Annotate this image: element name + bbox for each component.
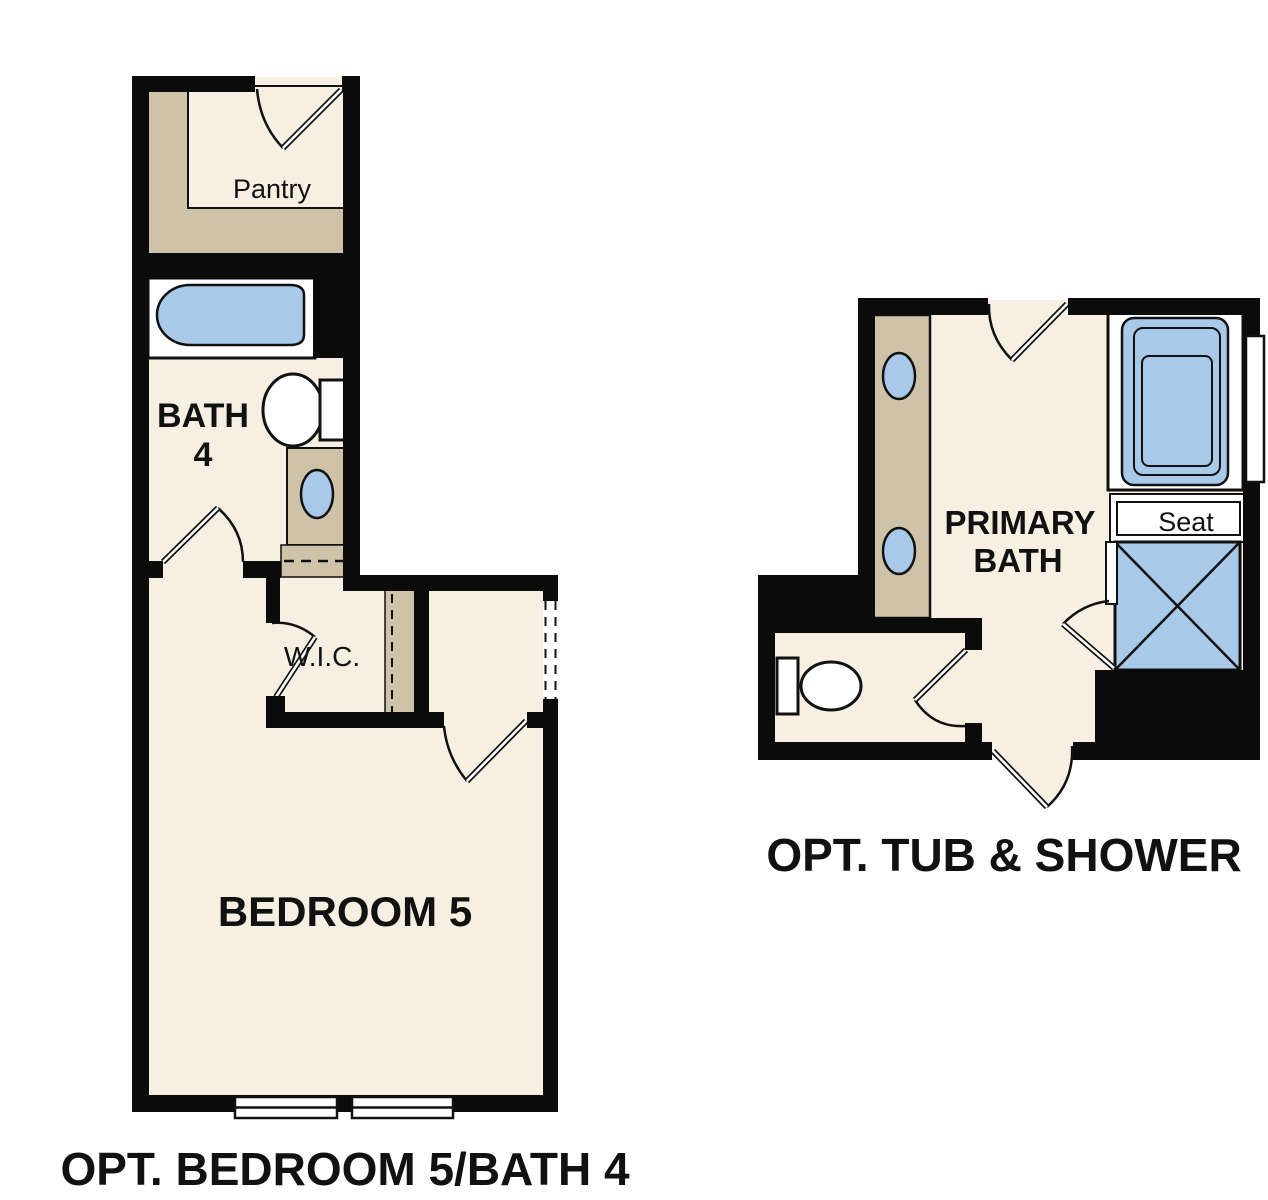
primary-bath-window bbox=[1246, 336, 1264, 482]
label-bath4-line1: BATH bbox=[157, 397, 249, 435]
label-primary-line1: PRIMARY bbox=[945, 504, 1096, 541]
closet-rod-shelf bbox=[385, 590, 415, 715]
caption-right-plan: OPT. TUB & SHOWER bbox=[766, 829, 1241, 881]
label-pantry: Pantry bbox=[233, 174, 312, 204]
cased-opening-right bbox=[543, 601, 558, 699]
caption-left-plan: OPT. BEDROOM 5/BATH 4 bbox=[60, 1143, 630, 1195]
label-wic: W.I.C. bbox=[284, 641, 360, 672]
sink-primary-2 bbox=[883, 528, 915, 574]
label-seat: Seat bbox=[1158, 507, 1214, 537]
label-primary-line2: BATH bbox=[973, 542, 1062, 579]
plan-bedroom5-bath4: Pantry BATH 4 W.I.C. BEDROOM 5 OPT. BEDR… bbox=[60, 76, 630, 1195]
plan-primary-bath: PRIMARY BATH Seat OPT. TUB & SHOWER bbox=[758, 298, 1264, 881]
label-bedroom5: BEDROOM 5 bbox=[218, 888, 472, 935]
primary-tub-inner bbox=[1142, 356, 1212, 466]
floorplan-page: Pantry BATH 4 W.I.C. BEDROOM 5 OPT. BEDR… bbox=[0, 0, 1268, 1200]
toilet-bath4 bbox=[263, 374, 346, 446]
sink-bath4 bbox=[301, 470, 333, 518]
shower-glass-panel bbox=[1106, 542, 1117, 604]
shower bbox=[1106, 542, 1240, 670]
sink-primary-1 bbox=[883, 353, 915, 399]
bathtub bbox=[157, 285, 304, 345]
label-bath4-line2: 4 bbox=[194, 436, 213, 474]
floorplan-canvas: Pantry BATH 4 W.I.C. BEDROOM 5 OPT. BEDR… bbox=[0, 0, 1268, 1200]
toilet-primary bbox=[777, 658, 861, 714]
